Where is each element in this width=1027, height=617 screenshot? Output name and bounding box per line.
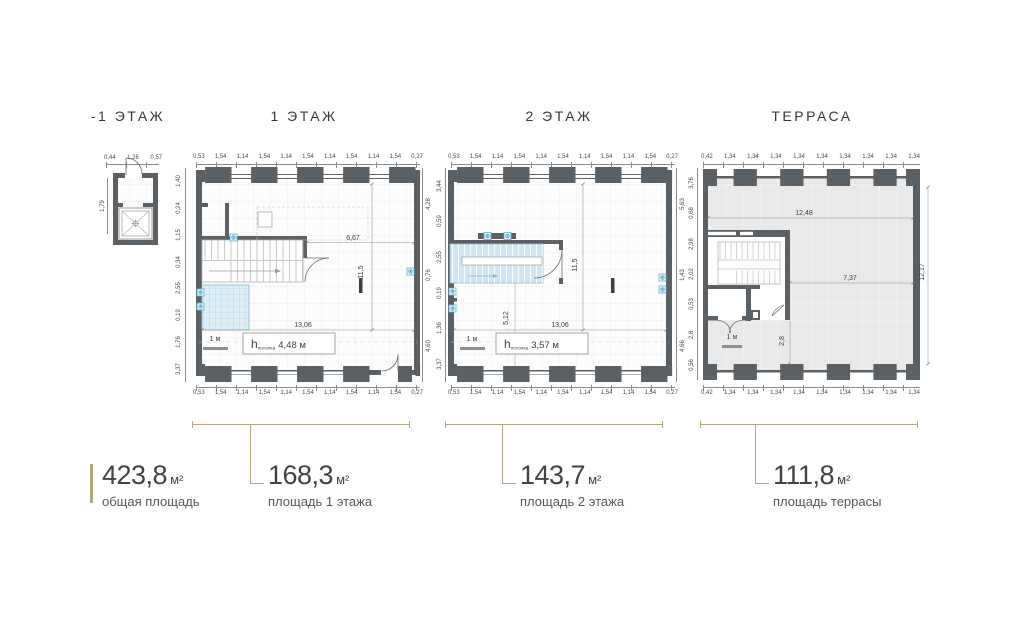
terrace-area-leader xyxy=(755,424,756,483)
dim-label: 0,19 xyxy=(176,309,182,321)
sheet-canvas: -1 ЭТАЖ 1 ЭТАЖ 2 ЭТАЖ ТЕРРАСА 0,441,260,… xyxy=(0,0,1027,617)
floor1-area-leader-stub xyxy=(250,483,264,484)
area-unit: м² xyxy=(837,472,850,487)
floor1-area-value: 168,3м² xyxy=(268,462,372,489)
plan-title-terrace: ТЕРРАСА xyxy=(712,108,912,124)
ceiling-h: h xyxy=(251,337,258,351)
floorplan-sheet: { "colors": { "accent": "#b2a77c", "wall… xyxy=(0,0,1027,617)
dim-label: 2,55 xyxy=(176,283,182,295)
terrace-area-value: 111,8м² xyxy=(773,462,881,489)
floor1-double-height-hatch xyxy=(202,285,249,330)
total-area-block: 423,8м² общая площадь xyxy=(102,462,200,509)
dim-label: 0,34 xyxy=(176,256,182,268)
ceiling-h: h xyxy=(504,337,511,351)
dim-stair-depth: 5,12 xyxy=(503,311,510,325)
floor2-area-bracket xyxy=(445,424,663,425)
terrace-area-leader-stub xyxy=(755,483,769,484)
floor2-area-value: 143,7м² xyxy=(520,462,624,489)
total-area-accent-bar xyxy=(90,464,93,503)
ceiling-sub: потолка xyxy=(258,347,276,352)
floor-plan-terrace: 12,48 7,37 2,8 12,17 1 м xyxy=(692,150,937,395)
plan-title-floor2: 2 ЭТАЖ xyxy=(459,108,659,124)
total-area-value: 423,8м² xyxy=(102,462,200,489)
dim-terrace-lower: 2,8 xyxy=(779,336,786,346)
area-number: 111,8 xyxy=(773,460,834,490)
dim-label: 1,76 xyxy=(176,336,182,348)
elevator-shaft xyxy=(119,208,152,239)
area-unit: м² xyxy=(588,472,601,487)
total-area-label: общая площадь xyxy=(102,494,200,509)
area-unit: м² xyxy=(336,472,349,487)
dim-upper-width: 6,67 xyxy=(346,235,360,242)
dim-room-height: 11,5 xyxy=(358,265,365,278)
scale-label: 1 м xyxy=(727,334,738,341)
area-number: 143,7 xyxy=(520,460,585,490)
ceiling-value: 4,48 м xyxy=(278,340,306,351)
floor1-area-bracket xyxy=(192,424,410,425)
dim-label: 0,24 xyxy=(176,202,182,214)
terrace-area-block: 111,8м² площадь террасы xyxy=(773,462,881,509)
dim-terrace-mid-width: 7,37 xyxy=(843,275,857,282)
scale-label: 1 м xyxy=(210,336,221,343)
area-number: 168,3 xyxy=(268,460,333,490)
floor-plan-floor1: 6,67 11,5 13,06 1 м hпотолка4,48 м xyxy=(185,150,430,395)
dim-label: 1,15 xyxy=(176,229,182,241)
basement-door xyxy=(126,158,142,175)
floor1-area-leader xyxy=(250,424,251,483)
dim-room-height: 11,5 xyxy=(572,258,579,271)
floor-plan-basement xyxy=(95,150,165,250)
floor2-stairs xyxy=(450,244,543,283)
terrace-area-label: площадь террасы xyxy=(773,494,881,509)
floor1-area-block: 168,3м² площадь 1 этажа xyxy=(268,462,372,509)
floor1-area-label: площадь 1 этажа xyxy=(268,494,372,509)
dim-terrace-height: 12,17 xyxy=(919,263,926,281)
terrace-stairs xyxy=(718,242,780,284)
area-unit: м² xyxy=(170,472,183,487)
floor1-ceiling-height-box: hпотолка4,48 м xyxy=(243,333,335,354)
dim-full-width: 13,06 xyxy=(551,322,569,329)
ceiling-value: 3,57 м xyxy=(531,340,559,351)
plan-title-floor1: 1 ЭТАЖ xyxy=(204,108,404,124)
floor2-area-leader xyxy=(502,424,503,483)
floor2-ceiling-height-box: hпотолка3,57 м xyxy=(496,333,588,354)
floor2-area-leader-stub xyxy=(502,483,516,484)
floor1-stairs xyxy=(202,240,303,282)
dim-full-width: 13,06 xyxy=(294,322,312,329)
dim-terrace-width: 12,48 xyxy=(795,210,813,217)
scale-label: 1 м xyxy=(467,336,478,343)
area-number: 423,8 xyxy=(102,460,167,490)
dim-label: 1,40 xyxy=(176,176,182,188)
floor2-area-block: 143,7м² площадь 2 этажа xyxy=(520,462,624,509)
ceiling-sub: потолка xyxy=(511,347,529,352)
floor2-area-label: площадь 2 этажа xyxy=(520,494,624,509)
plan-title-basement: -1 ЭТАЖ xyxy=(28,108,228,124)
floor-plan-floor2: 11,5 5,12 13,06 1 м hпотолка3,57 м xyxy=(440,150,685,395)
terrace-area-bracket xyxy=(700,424,918,425)
dim-label: 3,37 xyxy=(176,363,182,375)
